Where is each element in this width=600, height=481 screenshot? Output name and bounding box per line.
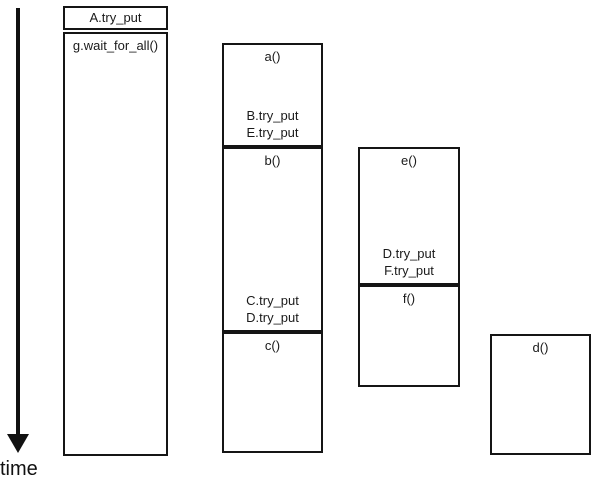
box-label: a() — [265, 49, 281, 65]
box-label: g.wait_for_all() — [73, 38, 158, 54]
call-label: F.try_put — [384, 262, 434, 279]
box-task-d: d() — [490, 334, 591, 455]
call-label: E.try_put — [246, 124, 298, 141]
call-label: B.try_put — [246, 107, 298, 124]
box-label: b() — [265, 153, 281, 169]
box-task-c: c() — [222, 332, 323, 453]
box-g-wait-for-all: g.wait_for_all() — [63, 32, 168, 456]
box-label: A.try_put — [89, 10, 141, 26]
box-task-f: f() — [358, 285, 460, 387]
time-arrow-line — [16, 8, 20, 436]
box-task-b: b() C.try_put D.try_put — [222, 147, 323, 332]
box-a-try-put: A.try_put — [63, 6, 168, 30]
box-label: c() — [265, 338, 280, 354]
box-label: d() — [533, 340, 549, 356]
box-label: e() — [401, 153, 417, 169]
box-task-a: a() B.try_put E.try_put — [222, 43, 323, 147]
call-label: D.try_put — [383, 245, 436, 262]
time-axis-label: time — [0, 458, 38, 481]
call-label: C.try_put — [246, 292, 299, 309]
time-arrow-head-icon — [7, 434, 29, 453]
call-label: D.try_put — [246, 309, 299, 326]
box-label: f() — [403, 291, 415, 307]
box-task-e: e() D.try_put F.try_put — [358, 147, 460, 285]
